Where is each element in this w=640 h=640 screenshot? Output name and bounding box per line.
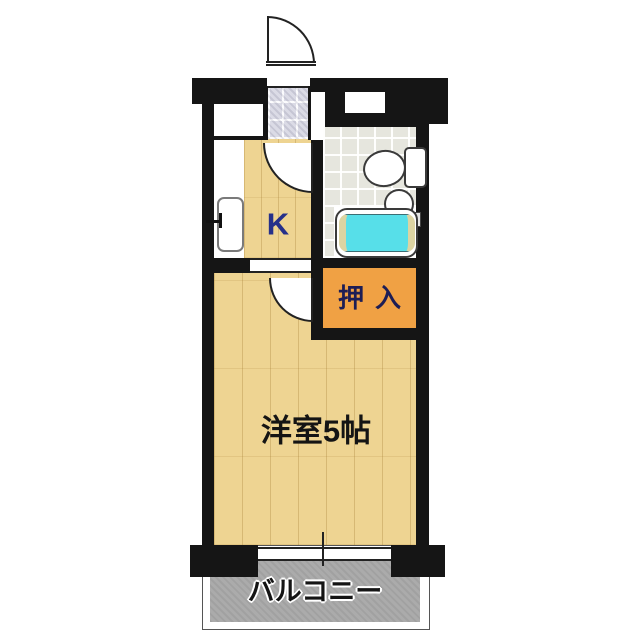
- wall-kitchen-room: [202, 258, 250, 273]
- floor-plan: K 押入 洋室5帖 バルコニー: [0, 0, 640, 640]
- kitchen-room-opening: [250, 258, 311, 273]
- window-center-line: [322, 532, 324, 566]
- bathtub-water: [339, 214, 415, 252]
- balcony-label: バルコニー: [248, 579, 382, 606]
- wall-closet-top: [311, 258, 429, 268]
- wall-closet-bottom: [311, 328, 429, 340]
- wall-genkan-right: [308, 86, 311, 140]
- entrance-tiles: [268, 86, 308, 139]
- kitchen-label: K: [267, 209, 289, 240]
- entrance-threshold: [266, 61, 316, 66]
- balcony-window: [258, 547, 391, 561]
- wall-notch-bottom: [214, 136, 268, 140]
- main-room-label: 洋室5帖: [261, 416, 371, 447]
- wall-notch: [345, 92, 385, 113]
- wall-bottom-right: [391, 545, 445, 577]
- closet-label: 押入: [338, 285, 412, 311]
- faucet-handle-icon: [219, 213, 222, 228]
- wall-genkan-left: [263, 86, 268, 140]
- wall-top-right: [310, 78, 448, 92]
- toilet-tank: [404, 147, 427, 188]
- wall-top-right-stub: [417, 92, 448, 124]
- entrance-door: [267, 16, 315, 64]
- wall-top-left: [192, 78, 267, 104]
- wall-bottom-left: [190, 545, 258, 577]
- wall-left: [202, 104, 214, 545]
